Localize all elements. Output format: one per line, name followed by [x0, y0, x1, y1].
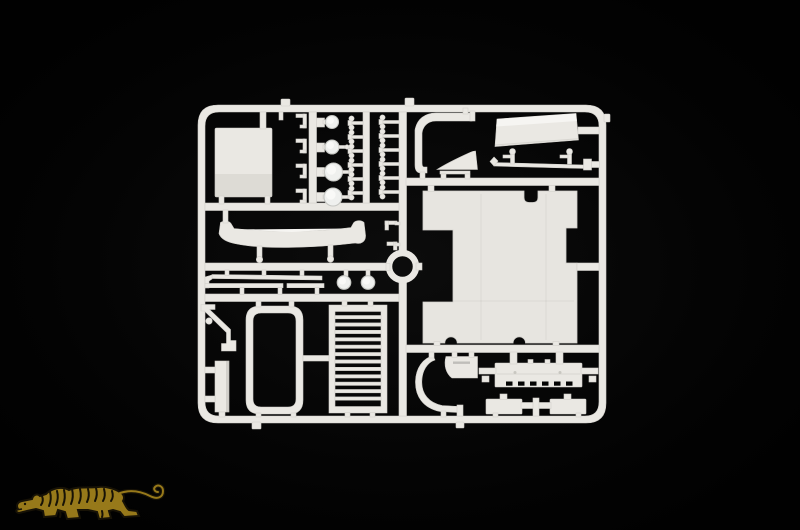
rail-horizontal-b — [205, 263, 389, 271]
rail-horizontal-right-upper — [406, 178, 599, 186]
tiger-mouth — [16, 509, 22, 510]
trim-strip-part — [287, 284, 324, 288]
rail-horizontal-a — [205, 203, 402, 211]
black-backdrop — [0, 0, 800, 530]
sprue-photo-svg — [0, 0, 800, 530]
gate-tab — [456, 422, 464, 428]
gate-tab — [604, 114, 610, 122]
gate-tab — [281, 99, 290, 106]
gate-tab — [252, 422, 261, 429]
rail-horizontal-right-lower — [406, 345, 599, 353]
product-photo — [0, 0, 800, 530]
rail-vertical-upper — [399, 112, 407, 253]
rail-horizontal-c — [205, 294, 399, 302]
tiger-eye — [24, 503, 26, 505]
trim-strip-part — [205, 284, 283, 288]
rail-vertical-lower — [399, 280, 407, 416]
gate-tab — [405, 98, 414, 106]
